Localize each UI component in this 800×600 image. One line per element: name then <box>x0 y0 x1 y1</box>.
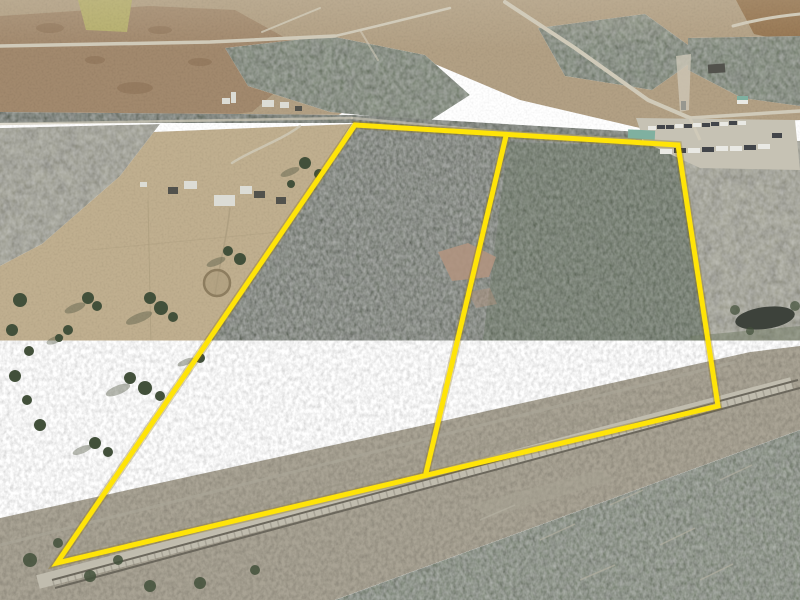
tree <box>746 327 754 335</box>
tree <box>103 447 113 457</box>
tree <box>53 538 63 548</box>
aerial-photo <box>0 0 800 600</box>
tree <box>730 305 740 315</box>
tree <box>6 324 18 336</box>
tree <box>82 292 94 304</box>
tree <box>154 301 168 315</box>
tree <box>234 253 246 265</box>
round-pen <box>204 270 230 296</box>
tree <box>55 334 63 342</box>
tree <box>790 301 800 311</box>
tree <box>22 395 32 405</box>
tree <box>168 312 178 322</box>
tree <box>24 346 34 356</box>
tree <box>194 577 206 589</box>
screenshot-root <box>0 0 800 600</box>
tree <box>84 570 96 582</box>
tree <box>144 580 156 592</box>
tree <box>138 381 152 395</box>
tree <box>34 419 46 431</box>
tree <box>92 301 102 311</box>
tree <box>13 293 27 307</box>
tree <box>63 325 73 335</box>
tree <box>223 246 233 256</box>
tree <box>124 372 136 384</box>
tree <box>144 292 156 304</box>
tree <box>23 553 37 567</box>
tree <box>89 437 101 449</box>
tree <box>250 565 260 575</box>
tree <box>9 370 21 382</box>
tree <box>113 555 123 565</box>
